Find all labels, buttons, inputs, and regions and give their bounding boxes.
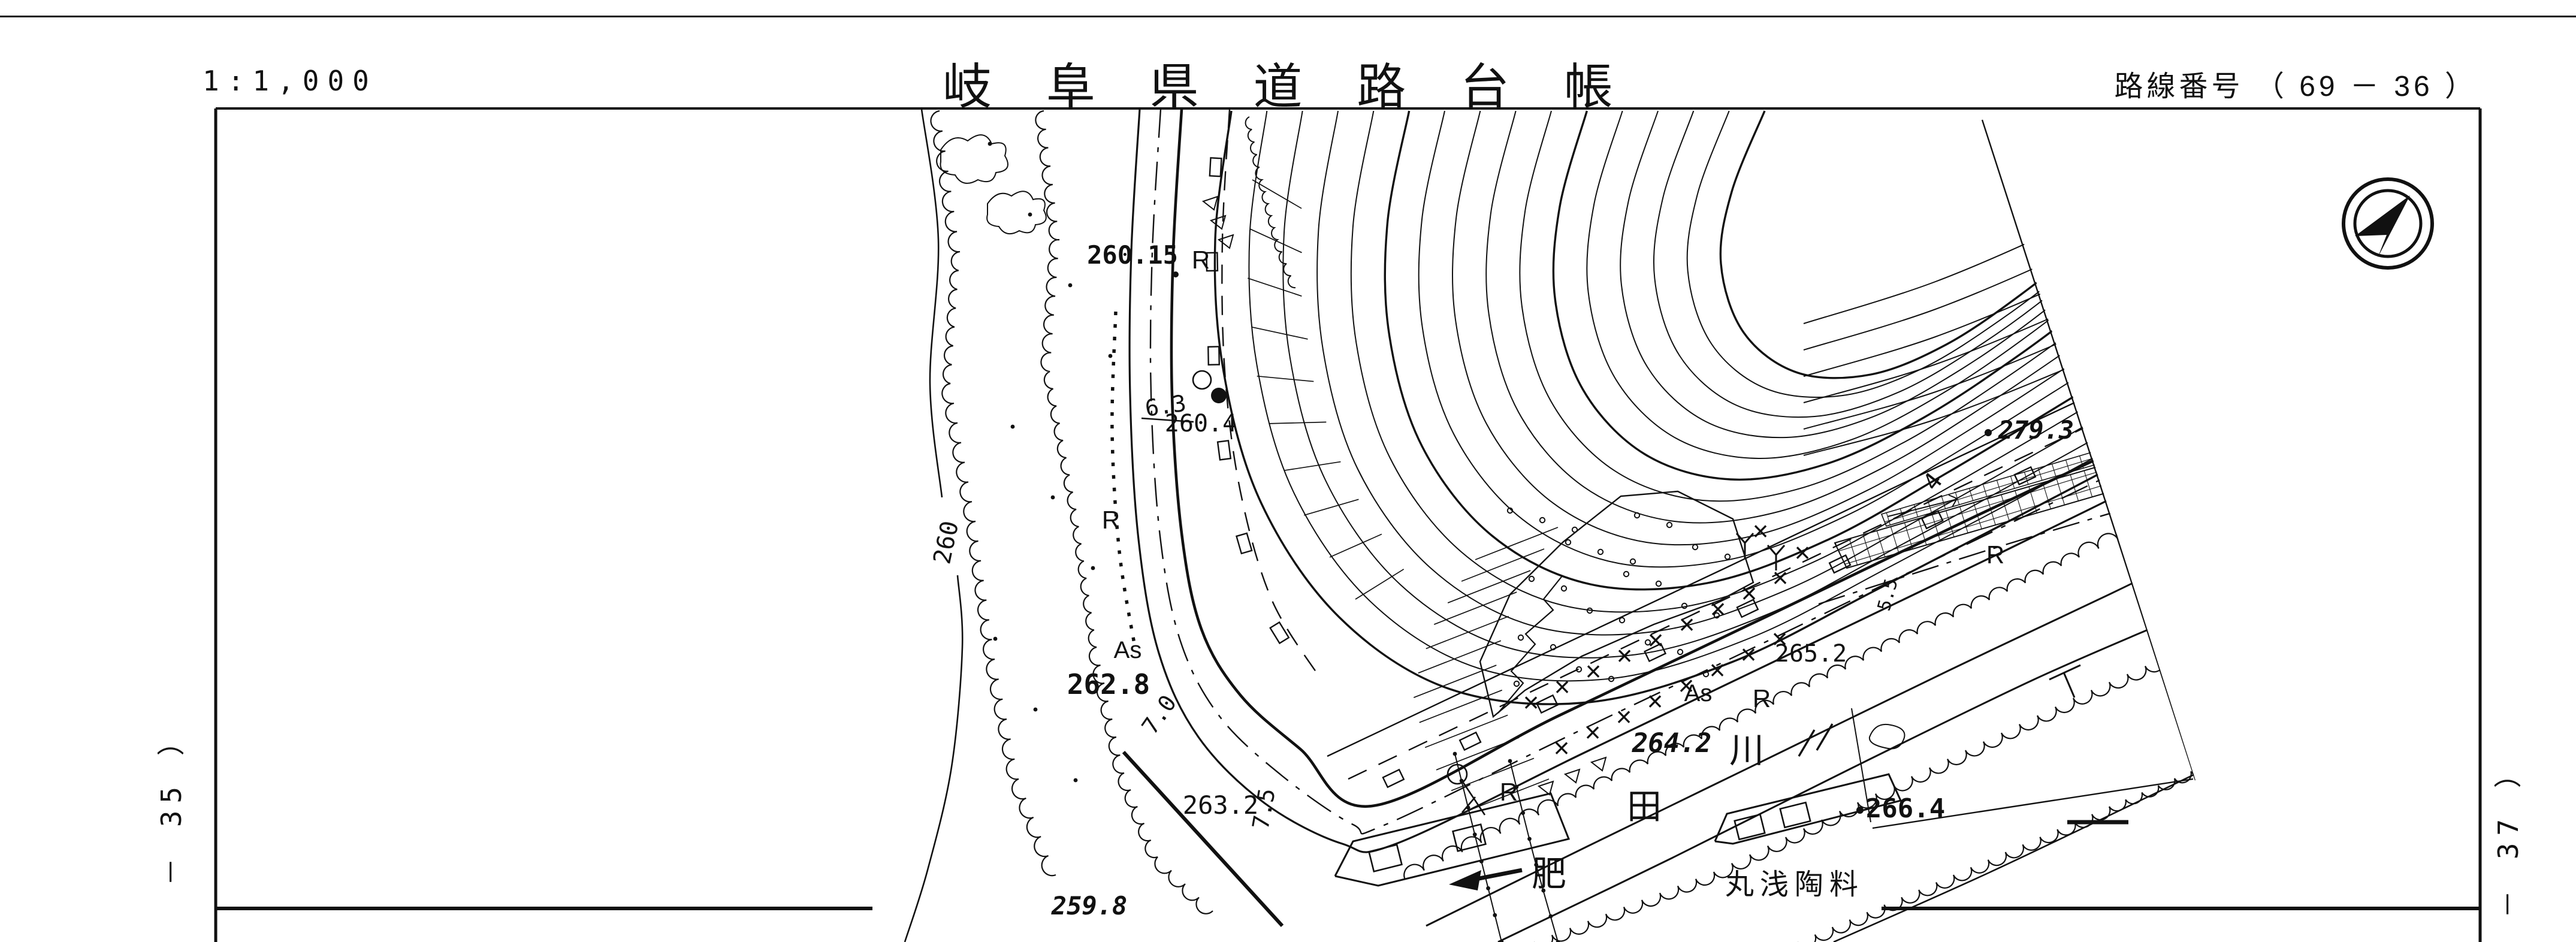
svg-text:×: × — [1523, 687, 1539, 718]
svg-text:×: × — [1772, 562, 1789, 593]
river-name-char: 川 — [1729, 731, 1764, 770]
pavement-mark: R — [1102, 506, 1120, 534]
svg-text:×: × — [1753, 515, 1769, 547]
road-width-label: 4 — [1917, 467, 1948, 496]
svg-text:×: × — [1585, 717, 1601, 748]
svg-text:×: × — [1741, 578, 1757, 609]
spot-elevation: 266.4 — [1866, 793, 1945, 824]
spot-elevation: 260.15 — [1087, 240, 1178, 270]
spot-elevation: 279.3 — [1998, 415, 2074, 445]
svg-text:×: × — [1679, 609, 1695, 640]
spot-elevation: 265.2 — [1775, 640, 1847, 668]
spot-elevation: 262.8 — [1067, 668, 1150, 701]
svg-text:×: × — [1647, 686, 1663, 717]
sheet-frame — [216, 108, 2480, 942]
left-sheet-number: － 35 ） — [155, 721, 188, 886]
svg-text:×: × — [1741, 639, 1757, 670]
svg-text:×: × — [1616, 701, 1632, 732]
svg-text:×: × — [1554, 732, 1570, 763]
spot-elevation: 259.8 — [1051, 891, 1127, 920]
svg-text:×: × — [1617, 640, 1633, 671]
company-label: 丸浅陶料 — [1725, 869, 1864, 901]
pavement-mark: As — [1684, 680, 1713, 707]
pavement-mark: R — [1753, 684, 1771, 712]
road-ledger-sheet: 1:1,000 岐 阜 県 道 路 台 帳 路線番号 （ 69 － 36 ） — [0, 0, 2576, 942]
spot-elevation: 264.2 — [1632, 728, 1711, 759]
river-name-char: 田 — [1627, 787, 1662, 826]
road-width-label: 5.5 — [1874, 576, 1902, 613]
north-arrow-icon — [2344, 179, 2432, 268]
pavement-mark: As — [1114, 637, 1142, 663]
spot-elevation: 263.2 — [1183, 790, 1258, 820]
svg-text:×: × — [1710, 593, 1726, 624]
svg-text:×: × — [1586, 656, 1602, 687]
river-name-char: 肥 — [1532, 855, 1566, 893]
svg-text:×: × — [1554, 671, 1571, 702]
map-canvas: ××××××××××××××××××× 260.15 260.4 262.8 2… — [0, 0, 2576, 942]
right-sheet-number: － 37 ） — [2492, 753, 2524, 918]
pavement-mark: R — [1500, 778, 1518, 806]
svg-text:×: × — [1795, 537, 1811, 568]
svg-text:×: × — [1648, 624, 1664, 656]
pavement-mark: R — [1986, 541, 2004, 569]
contour-label: 260 — [928, 518, 964, 566]
pavement-mark: R — [1192, 246, 1210, 274]
